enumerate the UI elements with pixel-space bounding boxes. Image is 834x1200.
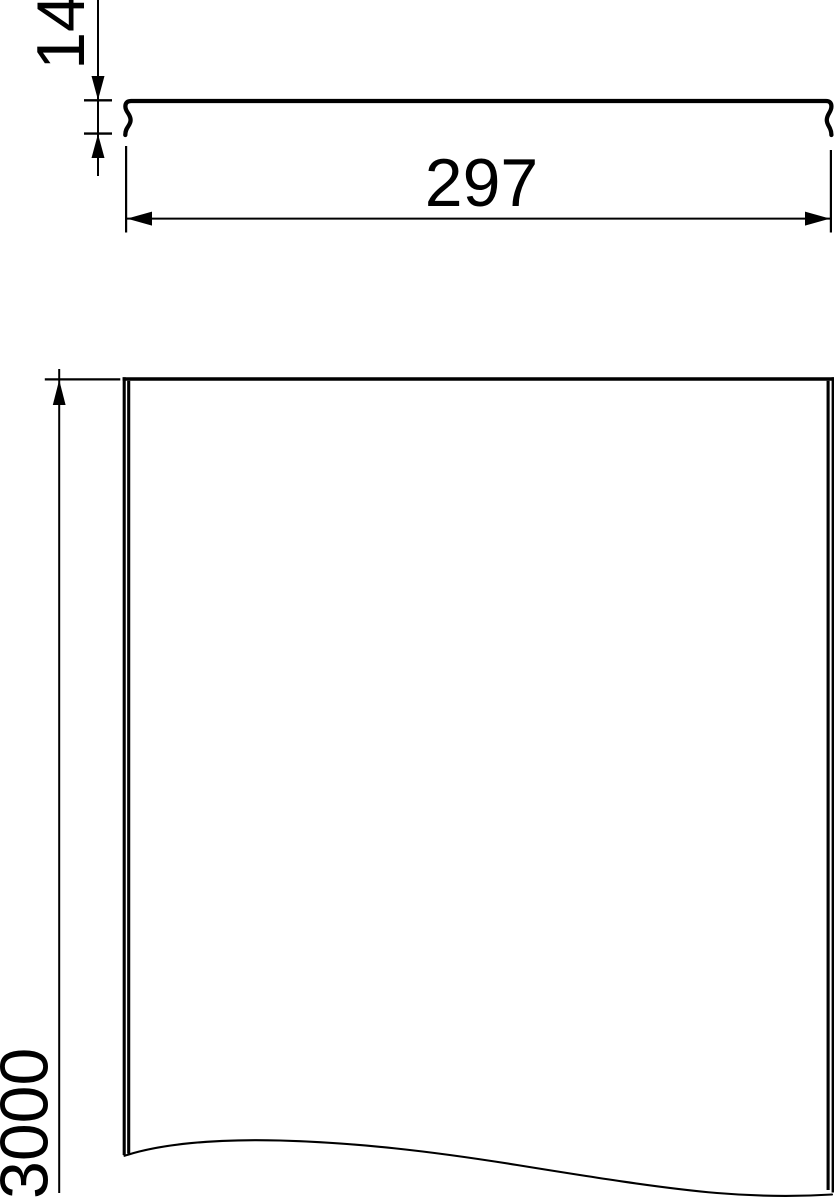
svg-text:14: 14 xyxy=(23,0,99,70)
svg-text:297: 297 xyxy=(425,145,538,221)
svg-text:3000: 3000 xyxy=(0,1048,63,1199)
